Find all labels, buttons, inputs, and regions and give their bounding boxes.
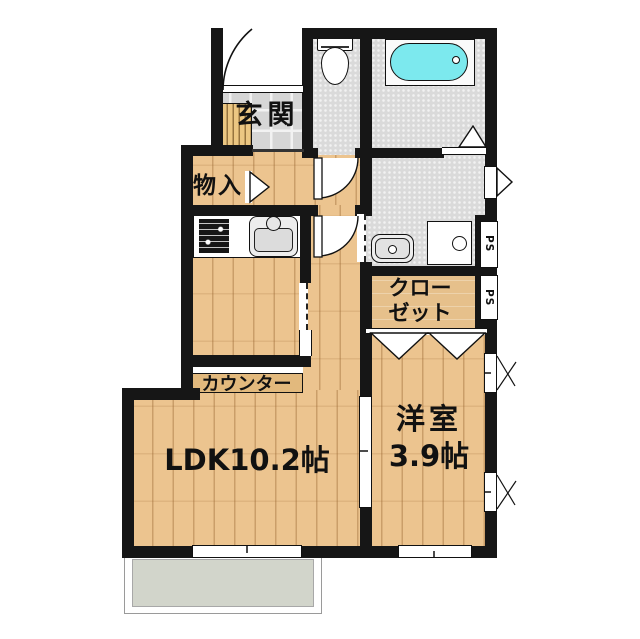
wall (300, 205, 311, 283)
sink-basin (254, 228, 293, 252)
kitchen-pass-through (299, 330, 312, 356)
wall (302, 148, 318, 158)
yoshitsu-label-line2: 3.9帖 (367, 438, 491, 475)
bathtub-icon (385, 39, 475, 86)
wall (122, 388, 134, 558)
balcony (124, 552, 322, 614)
wall (360, 148, 444, 158)
wall (302, 28, 313, 158)
counter-label: カウンター (190, 373, 303, 393)
wall (302, 28, 497, 39)
closet-door-line (366, 328, 487, 334)
ps-duct-bottom: PS (480, 275, 498, 320)
washbasin-icon (371, 234, 414, 263)
floor-plan: PS カウンター PS PS (0, 0, 640, 639)
casement-window-marks (497, 356, 516, 509)
balcony-deck (132, 559, 314, 607)
washing-machine-pan-icon (427, 221, 472, 265)
closet-label: クロー ゼット (366, 276, 474, 326)
genkan-label: 玄関 (224, 96, 306, 128)
ldk-balcony-window (192, 545, 302, 558)
ps-duct-bottom-label: PS (483, 289, 495, 305)
washbasin-drain (388, 245, 397, 254)
wall (181, 145, 253, 156)
washer-drain (452, 236, 467, 251)
yoshitsu-label: 洋室 3.9帖 (367, 401, 491, 477)
monoire-label: 物入 (189, 169, 247, 196)
yoshitsu-bottom-window (398, 545, 472, 558)
yoshitsu-label-line1: 洋室 (367, 401, 491, 438)
faucet-icon (266, 216, 281, 231)
stove-icon (199, 219, 229, 253)
genkan-step-line (252, 149, 304, 152)
closet-label-line2: ゼット (366, 301, 474, 326)
ps-duct-top: PS (480, 221, 498, 268)
bathroom-door-line (442, 147, 486, 155)
yoshitsu-right-window-2 (484, 472, 497, 512)
kitchen-opening-dashed (299, 283, 308, 330)
yoshitsu-right-window-1 (484, 353, 497, 393)
wall (181, 355, 311, 367)
kitchen-sink-icon (249, 216, 298, 257)
washroom-window-triangle (497, 168, 512, 196)
closet-label-line1: クロー (366, 276, 474, 301)
washroom-window (484, 166, 497, 199)
ps-duct-top-label: PS (483, 235, 495, 251)
wall (122, 388, 200, 400)
wall (360, 507, 372, 558)
washroom-opening-dashed (357, 214, 366, 262)
bathtub-drain (452, 56, 460, 64)
entrance-door-arc (223, 29, 252, 90)
wall (360, 28, 372, 158)
wall (181, 205, 318, 216)
ldk-label: LDK10.2帖 (134, 441, 360, 475)
wall (360, 158, 372, 214)
